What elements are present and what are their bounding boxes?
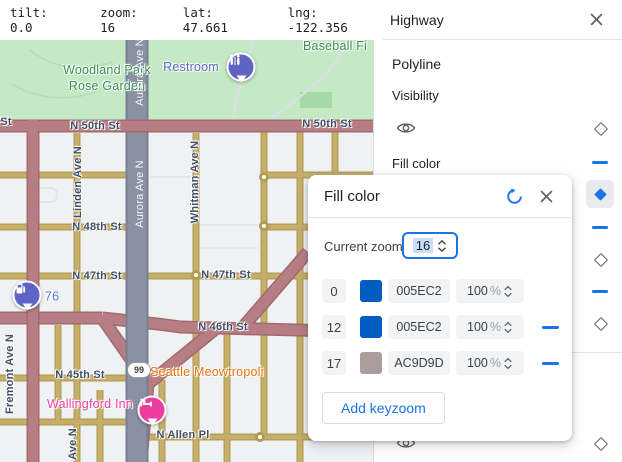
hotel-pin[interactable] bbox=[138, 396, 167, 425]
opacity-field[interactable]: 100 % bbox=[456, 279, 524, 303]
street-label-n47th: N 47th St bbox=[201, 269, 250, 281]
close-icon bbox=[539, 189, 554, 204]
poi-label-hotel: Wallingford Inn bbox=[47, 397, 133, 411]
dialog-close-button[interactable] bbox=[536, 186, 556, 206]
value-set-dash-icon[interactable] bbox=[592, 161, 608, 164]
opacity-field[interactable]: 100 % bbox=[456, 315, 524, 339]
visibility-eye-icon[interactable] bbox=[396, 121, 416, 135]
street-label: St bbox=[0, 116, 11, 128]
hex-value-field[interactable]: AC9D9D bbox=[388, 351, 450, 375]
current-zoom-label: Current zoom bbox=[324, 239, 403, 254]
status-lat: lat: 47.661 bbox=[183, 5, 264, 35]
park-label: Baseball Fi bbox=[303, 40, 367, 53]
stepper-chevrons-icon[interactable] bbox=[503, 356, 513, 371]
stepper-chevrons-icon[interactable] bbox=[437, 238, 447, 254]
color-swatch[interactable] bbox=[360, 352, 382, 374]
add-keyzoom-button[interactable]: Add keyzoom bbox=[322, 392, 445, 424]
street-label-partial: Ave N bbox=[67, 428, 79, 460]
remove-keyzoom-button[interactable] bbox=[542, 362, 559, 365]
panel-close-button[interactable] bbox=[586, 10, 606, 30]
value-set-dash-icon[interactable] bbox=[592, 226, 608, 229]
poi-label-gas: 76 bbox=[45, 289, 60, 304]
reset-button[interactable] bbox=[504, 186, 524, 206]
reset-icon bbox=[506, 188, 523, 205]
panel-title: Highway bbox=[390, 12, 444, 28]
street-label-n45th: N 45th St bbox=[55, 369, 104, 381]
minor-path bbox=[150, 177, 258, 248]
street-label-n47th: N 47th St bbox=[72, 270, 121, 282]
fill-color-dialog: Fill color Current zoom 16 0 bbox=[308, 175, 572, 441]
hex-value-field[interactable]: 005EC2 bbox=[388, 279, 450, 303]
status-lng: lng: -122.356 bbox=[288, 5, 383, 35]
keyzoom-row: 0 005EC2 100 % bbox=[308, 278, 572, 304]
panel-header: Highway bbox=[374, 0, 622, 40]
keyzoom-level[interactable]: 0 bbox=[322, 279, 346, 303]
keyzoom-level[interactable]: 17 bbox=[322, 351, 346, 375]
street-label-n48th: N 48th St bbox=[72, 221, 121, 233]
percent-sign: % bbox=[490, 284, 501, 298]
poi-label-restroom: Restroom bbox=[163, 60, 219, 74]
opacity-value: 100 bbox=[467, 284, 488, 298]
opacity-value: 100 bbox=[467, 320, 488, 334]
value-set-dash-icon[interactable] bbox=[592, 290, 608, 293]
status-zoom: zoom: 16 bbox=[100, 5, 159, 35]
keyzoom-diamond-icon[interactable] bbox=[594, 253, 608, 267]
restroom-pin[interactable] bbox=[227, 53, 256, 82]
keyzoom-diamond-icon[interactable] bbox=[594, 317, 608, 331]
keyzoom-diamond-icon[interactable] bbox=[594, 122, 608, 136]
restroom-icon bbox=[229, 55, 242, 66]
field-label-fill-color: Fill color bbox=[392, 156, 440, 171]
stepper-chevrons-icon[interactable] bbox=[503, 320, 513, 335]
street-label-linden: Linden Ave N bbox=[72, 146, 84, 218]
street-label-n46th: N 46th St bbox=[198, 321, 247, 333]
status-tilt: tilt: 0.0 bbox=[10, 5, 76, 35]
remove-keyzoom-button[interactable] bbox=[542, 326, 559, 329]
dialog-title: Fill color bbox=[324, 188, 380, 205]
fuel-pump-icon bbox=[15, 283, 27, 295]
street-label-n50th: N 50th St bbox=[302, 118, 351, 130]
map-status-bar: tilt: 0.0 zoom: 16 lat: 47.661 lng: -122… bbox=[0, 0, 383, 40]
street-label-whitman: Whitman Ave N bbox=[189, 141, 201, 223]
opacity-value: 100 bbox=[467, 356, 488, 370]
street-label-n50th: N 50th St bbox=[70, 120, 119, 132]
street-label-fremont: Fremont Ave N bbox=[4, 334, 16, 414]
app-window: tilt: 0.0 zoom: 16 lat: 47.661 lng: -122… bbox=[0, 0, 622, 462]
opacity-field[interactable]: 100 % bbox=[456, 351, 524, 375]
street-label-aurora: Aurora Ave N bbox=[134, 40, 146, 106]
gas-station-pin[interactable] bbox=[13, 281, 42, 310]
close-icon bbox=[589, 12, 604, 27]
color-swatch[interactable] bbox=[360, 280, 382, 302]
keyzoom-row: 17 AC9D9D 100 % bbox=[308, 350, 572, 376]
field-label-visibility: Visibility bbox=[392, 88, 439, 103]
current-zoom-input[interactable]: 16 bbox=[402, 232, 458, 259]
section-label-polyline: Polyline bbox=[392, 56, 441, 72]
hex-value-field[interactable]: 005EC2 bbox=[388, 315, 450, 339]
color-swatch[interactable] bbox=[360, 316, 382, 338]
dialog-header: Fill color bbox=[308, 175, 572, 218]
street-label-aurora: Aurora Ave N bbox=[134, 160, 146, 228]
bed-icon bbox=[140, 398, 153, 408]
route-shield-99: 99 bbox=[127, 362, 151, 378]
stepper-chevrons-icon[interactable] bbox=[503, 284, 513, 299]
poi-label-cafe: Seattle Meowtropoli bbox=[150, 365, 264, 379]
percent-sign: % bbox=[490, 320, 501, 334]
current-zoom-value[interactable]: 16 bbox=[413, 238, 433, 253]
keyzoom-diamond-icon[interactable] bbox=[594, 437, 608, 451]
keyzoom-level[interactable]: 12 bbox=[322, 315, 346, 339]
percent-sign: % bbox=[490, 356, 501, 370]
street-label-nallen: N Allen Pl bbox=[157, 429, 210, 441]
keyzoom-row: 12 005EC2 100 % bbox=[308, 314, 572, 340]
